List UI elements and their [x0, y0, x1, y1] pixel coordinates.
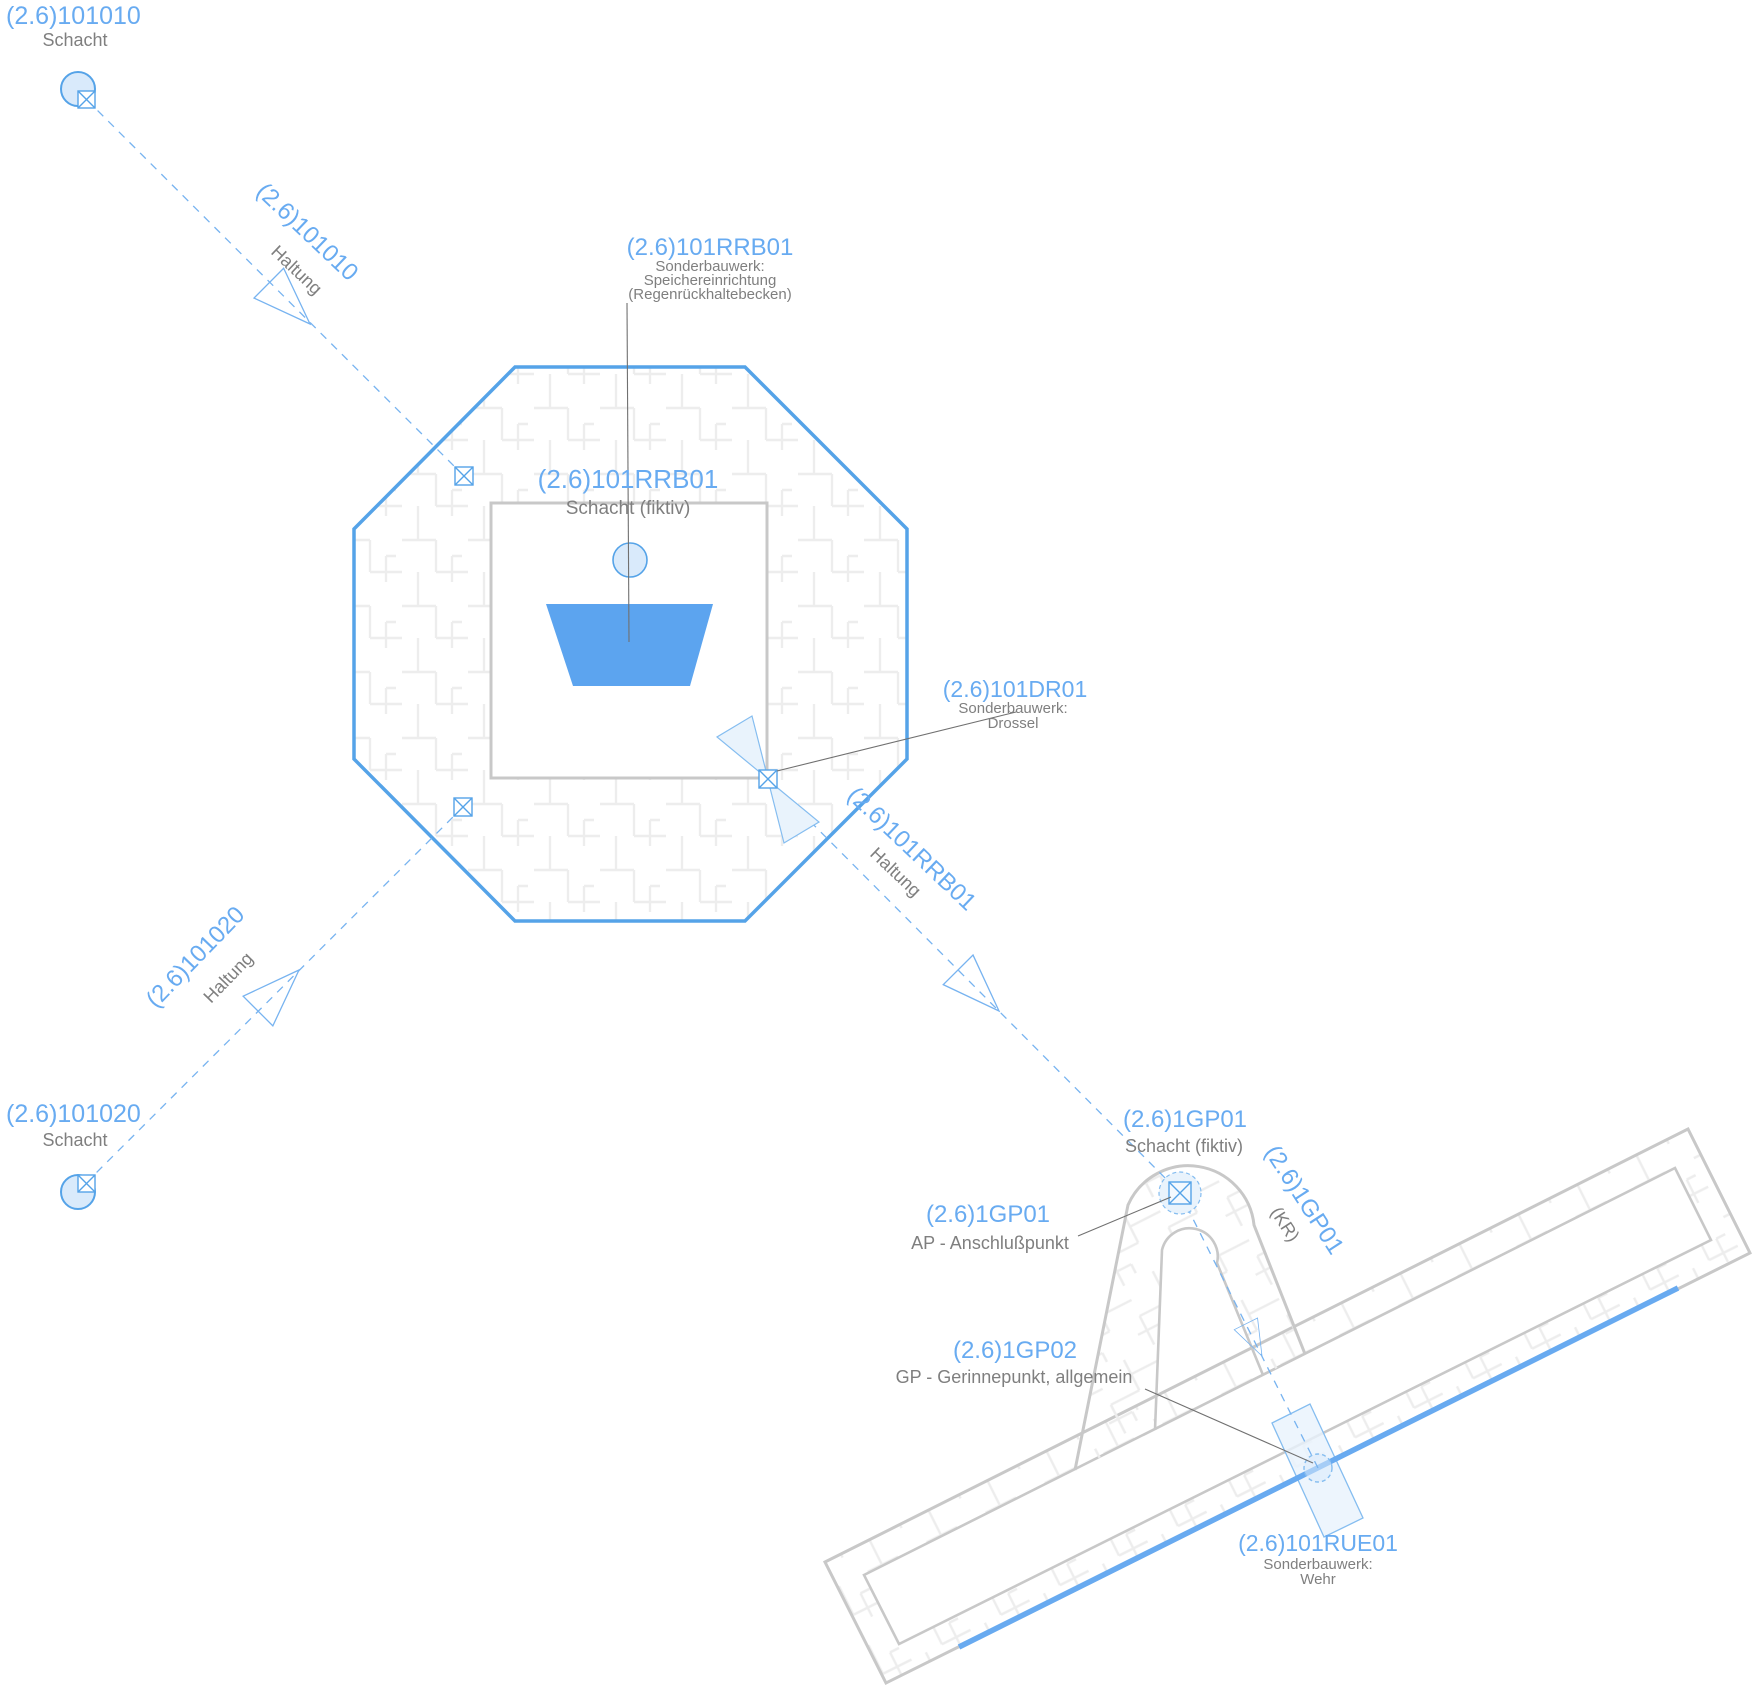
label-rue01-id: (2.6)101RUE01 — [1238, 1530, 1398, 1556]
basin-inlet-marker-2[interactable] — [454, 798, 472, 816]
label-drossel-line2: Drossel — [988, 715, 1039, 732]
retention-basin-structure[interactable] — [354, 367, 907, 921]
basin-inlet-marker-1[interactable] — [455, 467, 473, 485]
label-schacht-101020-type: Schacht — [42, 1130, 107, 1150]
label-rrb-schacht-id: (2.6)101RRB01 — [538, 464, 719, 494]
label-gp01-ap-type: AP - Anschlußpunkt — [911, 1233, 1069, 1253]
label-gp01-kr-id: (2.6)1GP01 — [1259, 1141, 1349, 1260]
label-gp01-schacht-type: Schacht (fiktiv) — [1125, 1136, 1243, 1156]
node-schacht-101010[interactable] — [61, 72, 95, 108]
storage-trapezoid-symbol[interactable] — [546, 604, 713, 686]
label-gp02-type: GP - Gerinnepunkt, allgemein — [896, 1367, 1133, 1387]
node-drossel-101dr01[interactable] — [759, 770, 777, 788]
label-drossel-id: (2.6)101DR01 — [943, 676, 1087, 702]
fictive-schacht-symbol[interactable] — [613, 543, 647, 577]
label-schacht-101020-id: (2.6)101020 — [6, 1100, 141, 1128]
label-gp01-ap-id: (2.6)1GP01 — [926, 1201, 1050, 1228]
label-rrb-structure-id: (2.6)101RRB01 — [627, 234, 794, 261]
label-gp01-schacht-id: (2.6)1GP01 — [1123, 1106, 1247, 1133]
label-schacht-101010-type: Schacht — [42, 30, 107, 50]
label-rrb-structure-line3: (Regenrückhaltebecken) — [628, 286, 791, 303]
label-rue01-line2: Wehr — [1300, 1571, 1336, 1588]
node-schacht-101020[interactable] — [61, 1175, 95, 1209]
node-gp01[interactable] — [1159, 1172, 1201, 1214]
label-gp02-id: (2.6)1GP02 — [953, 1337, 1077, 1364]
label-rrb-schacht-type: Schacht (fiktiv) — [566, 498, 691, 519]
network-plan-canvas: (2.6)101010 Schacht (2.6)101010 Haltung … — [0, 0, 1752, 1687]
label-schacht-101010-id: (2.6)101010 — [6, 2, 141, 30]
